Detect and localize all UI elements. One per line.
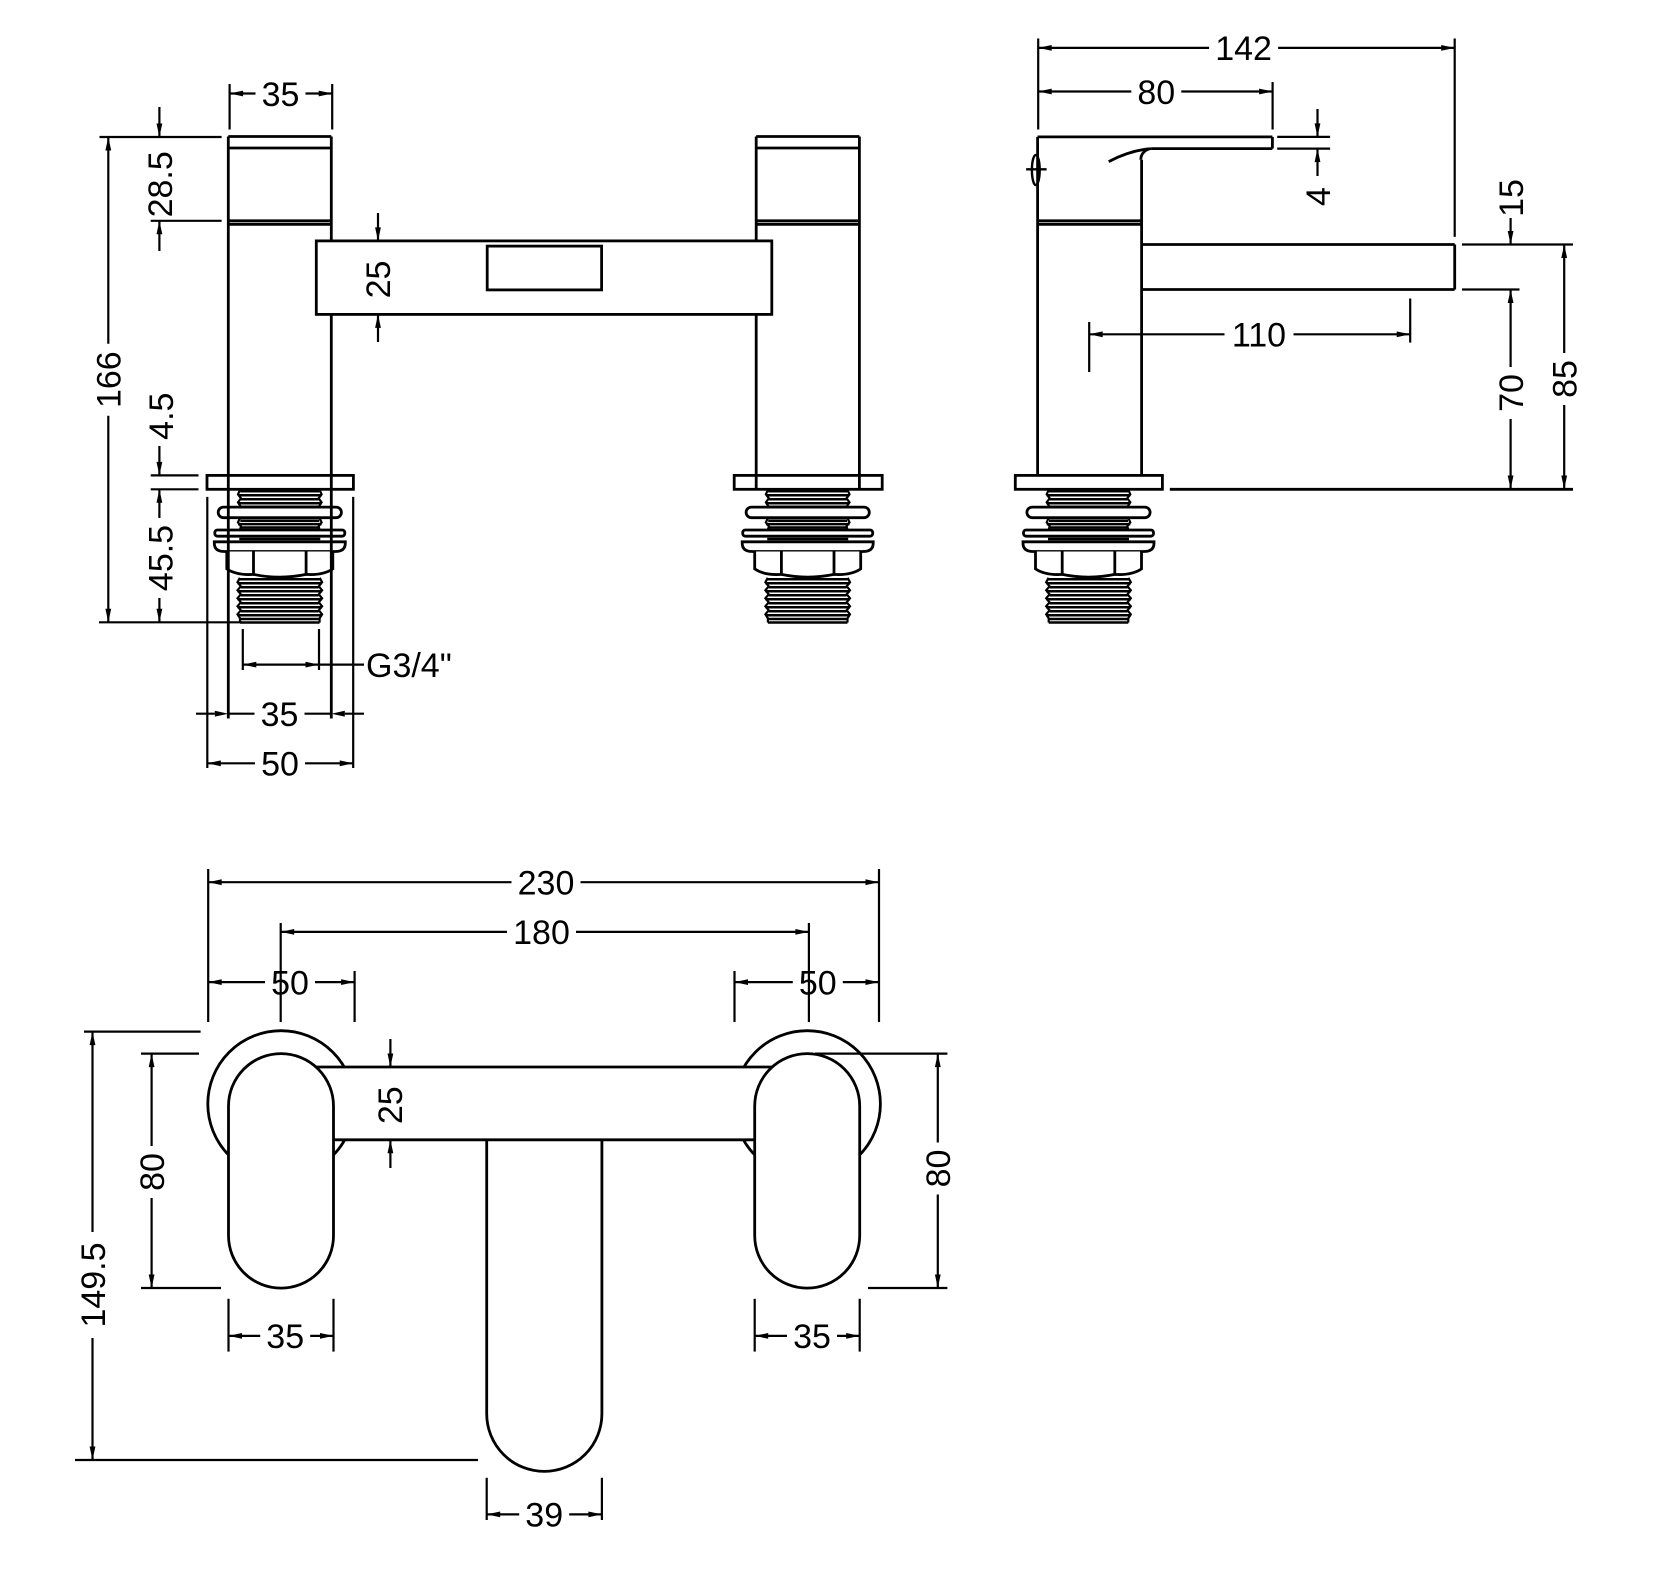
svg-text:166: 166 [91,351,129,408]
svg-text:80: 80 [1137,74,1175,112]
svg-text:50: 50 [261,746,299,784]
svg-text:45.5: 45.5 [142,525,180,591]
svg-text:149.5: 149.5 [75,1242,113,1327]
svg-text:180: 180 [513,914,570,952]
svg-text:142: 142 [1215,30,1272,68]
svg-text:230: 230 [518,865,575,903]
svg-text:70: 70 [1493,374,1531,412]
svg-text:80: 80 [920,1150,958,1188]
svg-text:4.5: 4.5 [143,393,181,440]
svg-text:35: 35 [793,1318,831,1356]
svg-text:50: 50 [271,964,309,1002]
svg-text:25: 25 [360,261,398,299]
svg-text:80: 80 [134,1153,172,1191]
svg-text:35: 35 [261,696,299,734]
svg-text:25: 25 [372,1086,410,1124]
svg-text:28.5: 28.5 [142,151,180,217]
svg-text:4: 4 [1300,187,1338,206]
svg-text:35: 35 [262,76,300,114]
svg-text:15: 15 [1493,179,1531,217]
svg-text:110: 110 [1232,317,1286,355]
svg-text:39: 39 [525,1497,563,1535]
svg-text:35: 35 [266,1318,304,1356]
svg-text:G3/4": G3/4" [366,647,452,685]
svg-text:50: 50 [799,964,837,1002]
svg-text:85: 85 [1547,360,1585,398]
